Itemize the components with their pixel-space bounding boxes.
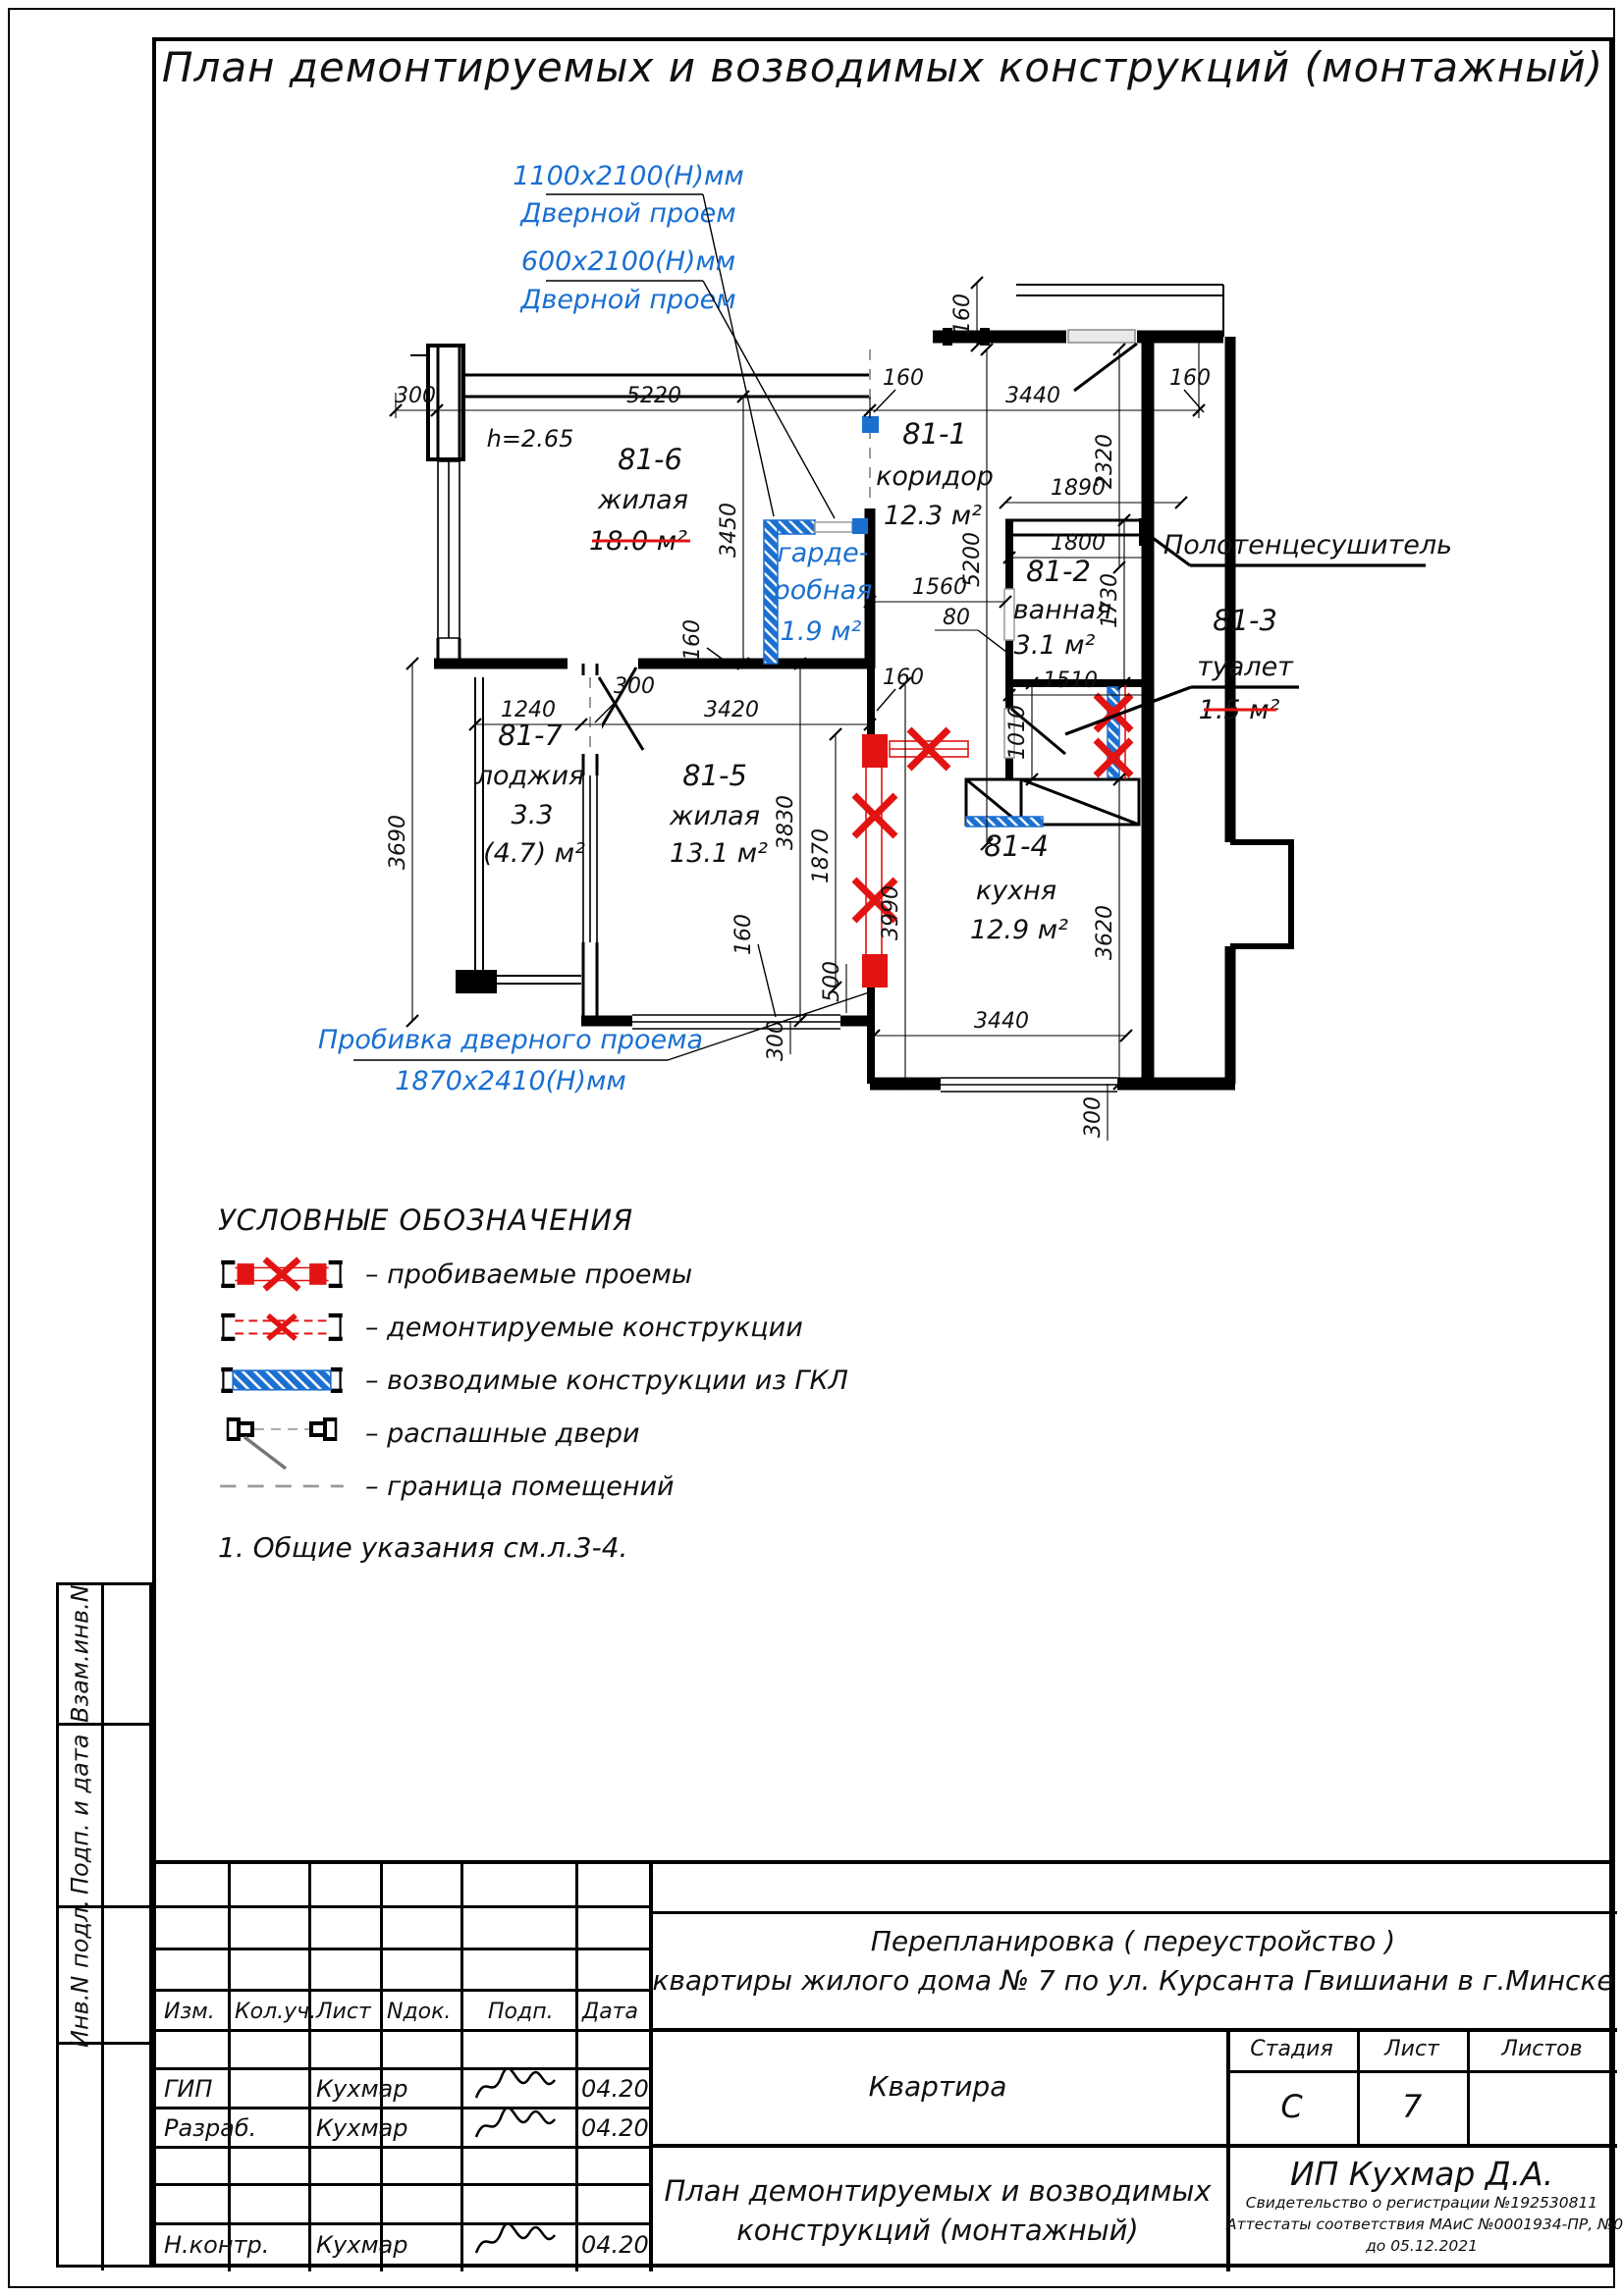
dim-3450: 3450 (717, 503, 741, 558)
tb-doc-line1: План демонтируемых и возводимых (649, 2174, 1226, 2208)
room-81-1-name: коридор (876, 461, 994, 492)
general-note: 1. Общие указания см.л.3-4. (218, 1531, 984, 1564)
dim-1510: 1510 (1043, 668, 1098, 693)
frame-sidebar: Взам.инв.N Подп. и дата Инв.N подл. (56, 1582, 152, 2268)
legend-item-new-gkl: – возводимые конструкции из ГКЛ (218, 1361, 984, 1400)
dim-1870: 1870 (809, 828, 834, 883)
tb-date-razrab: 04.20 (581, 2114, 649, 2142)
demolished-structures-icon (218, 1308, 346, 1347)
sidebar-label-vzam: Взам.инв.N (59, 1585, 101, 1723)
room-81-3-name: туалет (1197, 652, 1294, 682)
room-81-1-area: 12.3 м² (884, 501, 982, 531)
tb-header-ndok: Nдок. (387, 2000, 451, 2024)
legend-label: – возводимые конструкции из ГКЛ (365, 1365, 848, 1396)
dim-3420: 3420 (704, 698, 759, 722)
room-81-4-name: кухня (976, 876, 1056, 906)
new-gkl-structures-icon (218, 1361, 346, 1400)
dim-1560: 1560 (912, 575, 967, 600)
wardrobe-name: робная (773, 575, 873, 606)
legend-item-room-boundary: – граница помещений (218, 1467, 984, 1506)
dim-3830: 3830 (774, 795, 798, 850)
existing-walls (410, 285, 1294, 1092)
tb-project-line1: Перепланировка ( переустройство ) (649, 1925, 1617, 1957)
wardrobe-area: 1.9 м² (781, 616, 862, 647)
room-81-2-name: ванная (1013, 595, 1112, 625)
room-81-5-area: 13.1 м² (670, 838, 768, 869)
drawing-sheet: План демонтируемых и возводимых конструк… (0, 0, 1623, 2296)
tb-object-name: Квартира (649, 2070, 1226, 2103)
room-81-1-id: 81-1 (902, 417, 967, 451)
dim-160: 160 (731, 914, 756, 955)
legend-item-swing-doors: – распашные двери (218, 1414, 984, 1453)
callout-punch-size: 1870x2410(Н)мм (395, 1066, 626, 1096)
tb-cert-line2: Аттестаты соответствия МАиС №0001934-ПР,… (1226, 2216, 1617, 2233)
legend-label: – демонтируемые конструкции (365, 1312, 803, 1343)
entrance-door-leaf (1068, 330, 1135, 343)
room-boundary-icon (218, 1467, 346, 1506)
tb-role-nkontr: Н.контр. (164, 2231, 269, 2259)
swing-doors-icon (218, 1414, 346, 1453)
tb-name-nkontr: Кухмар (316, 2231, 408, 2259)
dim-3440-bottom: 3440 (974, 1009, 1029, 1034)
dim-160: 160 (883, 366, 924, 391)
callout-door1-label: Дверной проем (519, 198, 735, 229)
dim-3990: 3990 (879, 885, 903, 940)
room-81-2-id: 81-2 (1026, 555, 1091, 588)
dim-300: 300 (1081, 1096, 1106, 1138)
gkl-wall-wardrobe-horizontal (778, 520, 815, 534)
dim-300: 300 (614, 674, 655, 699)
room-81-3-id: 81-3 (1213, 604, 1277, 637)
tb-name-gip: Кухмар (316, 2075, 408, 2103)
legend-label: – граница помещений (365, 1471, 675, 1502)
room-81-4-area: 12.9 м² (970, 915, 1068, 945)
tb-header-podp: Подп. (488, 2000, 554, 2024)
dim-160: 160 (680, 619, 705, 661)
dim-80: 80 (943, 606, 970, 630)
tb-header-izm: Изм. (164, 2000, 215, 2024)
dim-160: 160 (950, 294, 975, 335)
tb-doc-line2: конструкций (монтажный) (649, 2214, 1226, 2247)
callout-door2-label: Дверной проем (519, 285, 735, 315)
tb-role-razrab: Разраб. (164, 2114, 256, 2142)
tb-header-data: Дата (582, 2000, 638, 2024)
towel-rail-mark (1139, 518, 1150, 546)
sidebar-label-inv: Инв.N подл. (59, 1905, 101, 2042)
room-81-6-id: 81-6 (618, 443, 682, 476)
dim-160: 160 (883, 666, 924, 690)
room-81-2-area: 3.1 м² (1014, 630, 1096, 661)
entrance-door-swing (1074, 344, 1137, 391)
dim-3690: 3690 (386, 815, 410, 870)
legend-label: – распашные двери (365, 1418, 640, 1449)
dim-5220: 5220 (626, 384, 681, 408)
legend-title: УСЛОВНЫЕ ОБОЗНАЧЕНИЯ (218, 1203, 984, 1237)
tb-role-gip: ГИП (164, 2075, 212, 2103)
room-81-4-id: 81-4 (984, 829, 1049, 863)
room-81-5-id: 81-5 (682, 759, 747, 792)
tb-company: ИП Кухмар Д.А. (1226, 2155, 1617, 2193)
tb-cert-line1: Свидетельство о регистрации №192530811 (1226, 2194, 1617, 2212)
callout-door1-size: 1100x2100(Н)мм (513, 161, 744, 191)
sidebar-label-podp: Подп. и дата (59, 1723, 101, 1905)
tb-date-nkontr: 04.20 (581, 2231, 649, 2259)
dim-160: 160 (1169, 366, 1211, 391)
dim-1800: 1800 (1051, 531, 1106, 556)
dim-500: 500 (820, 961, 844, 1002)
signature-nkontr (470, 2225, 568, 2259)
legend: УСЛОВНЫЕ ОБОЗНАЧЕНИЯ – пробиваемые проем… (218, 1203, 984, 1564)
dimension-labels: 300 5220 3440 160 160 160 3690 3450 160 … (386, 294, 1211, 1138)
legend-item-pierced-openings: – пробиваемые проемы (218, 1255, 984, 1294)
tb-sheet-value: 7 (1357, 2088, 1467, 2125)
callout-door2-size: 600x2100(Н)мм (521, 246, 735, 277)
room-81-7-area: 3.3 (512, 800, 554, 830)
callout-towel-rail: Полотенцесушитель (1163, 530, 1452, 561)
room-81-7-name: лоджия (475, 761, 585, 791)
room-81-6-name: жилая (597, 485, 688, 515)
tb-header-koluch: Кол.уч. (235, 2000, 316, 2024)
room-81-5-name: жилая (669, 801, 760, 831)
wardrobe-name: гарде- (778, 538, 869, 568)
signature-gip (470, 2070, 568, 2104)
signature-razrab (470, 2109, 568, 2143)
dim-1890: 1890 (1051, 476, 1106, 501)
dim-300-top: 300 (395, 384, 436, 408)
tb-project-line2: квартиры жилого дома № 7 по ул. Курсанта… (649, 1964, 1617, 1997)
tb-stage-value: С (1226, 2088, 1357, 2125)
tb-sheets-label: Листов (1467, 2037, 1617, 2061)
legend-label: – пробиваемые проемы (365, 1259, 692, 1290)
tb-date-gip: 04.20 (581, 2075, 649, 2103)
tb-sheet-label: Лист (1357, 2037, 1467, 2061)
tb-header-list: Лист (316, 2000, 371, 2024)
tb-cert-line3: до 05.12.2021 (1226, 2237, 1617, 2255)
ceiling-height-note: h=2.65 (487, 425, 574, 453)
dim-3620: 3620 (1093, 905, 1117, 960)
dim-3440-top: 3440 (1005, 384, 1060, 408)
pierced-openings-icon (218, 1255, 346, 1294)
title-block: Изм. Кол.уч. Лист Nдок. Подп. Дата ГИП К… (152, 1860, 1613, 2268)
tb-stage-label: Стадия (1226, 2037, 1357, 2061)
room-81-7-area-alt: (4.7) м² (483, 838, 585, 869)
legend-item-demolished: – демонтируемые конструкции (218, 1308, 984, 1347)
tb-name-razrab: Кухмар (316, 2114, 408, 2142)
wardrobe-door (815, 522, 852, 532)
callout-punch-label: Пробивка дверного проема (318, 1025, 703, 1055)
gkl-wall-kitchen (966, 817, 1043, 827)
room-81-7-id: 81-7 (498, 719, 563, 752)
dim-1010: 1010 (1005, 705, 1030, 760)
